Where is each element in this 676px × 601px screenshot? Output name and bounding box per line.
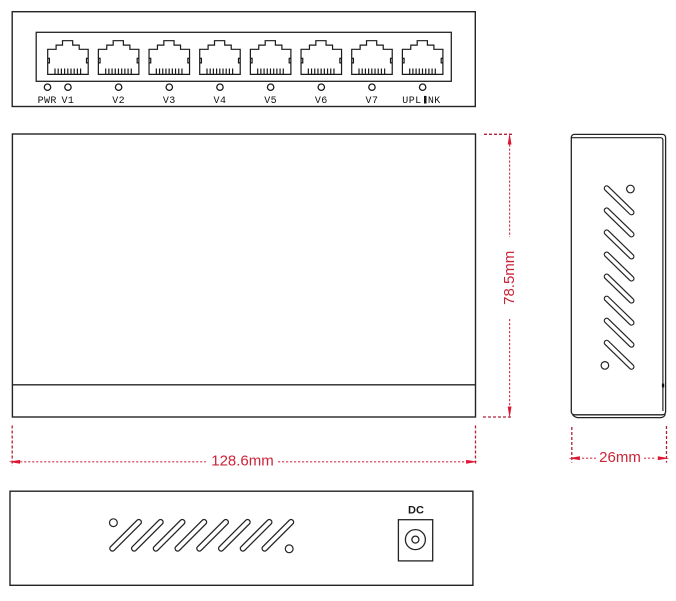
svg-text:DC: DC bbox=[408, 505, 424, 517]
svg-text:V4: V4 bbox=[214, 96, 227, 107]
svg-text:V7: V7 bbox=[366, 96, 379, 107]
svg-text:V3: V3 bbox=[163, 96, 176, 107]
svg-text:V5: V5 bbox=[264, 96, 277, 107]
svg-text:UPL: UPL bbox=[402, 96, 421, 107]
svg-text:V1: V1 bbox=[62, 96, 75, 107]
svg-text:V6: V6 bbox=[315, 96, 328, 107]
svg-text:NK: NK bbox=[428, 96, 441, 107]
svg-text:78.5mm: 78.5mm bbox=[501, 251, 518, 305]
svg-text:V2: V2 bbox=[112, 96, 125, 107]
svg-text:PWR: PWR bbox=[38, 96, 57, 107]
svg-text:26mm: 26mm bbox=[599, 449, 641, 466]
svg-text:128.6mm: 128.6mm bbox=[211, 453, 274, 470]
